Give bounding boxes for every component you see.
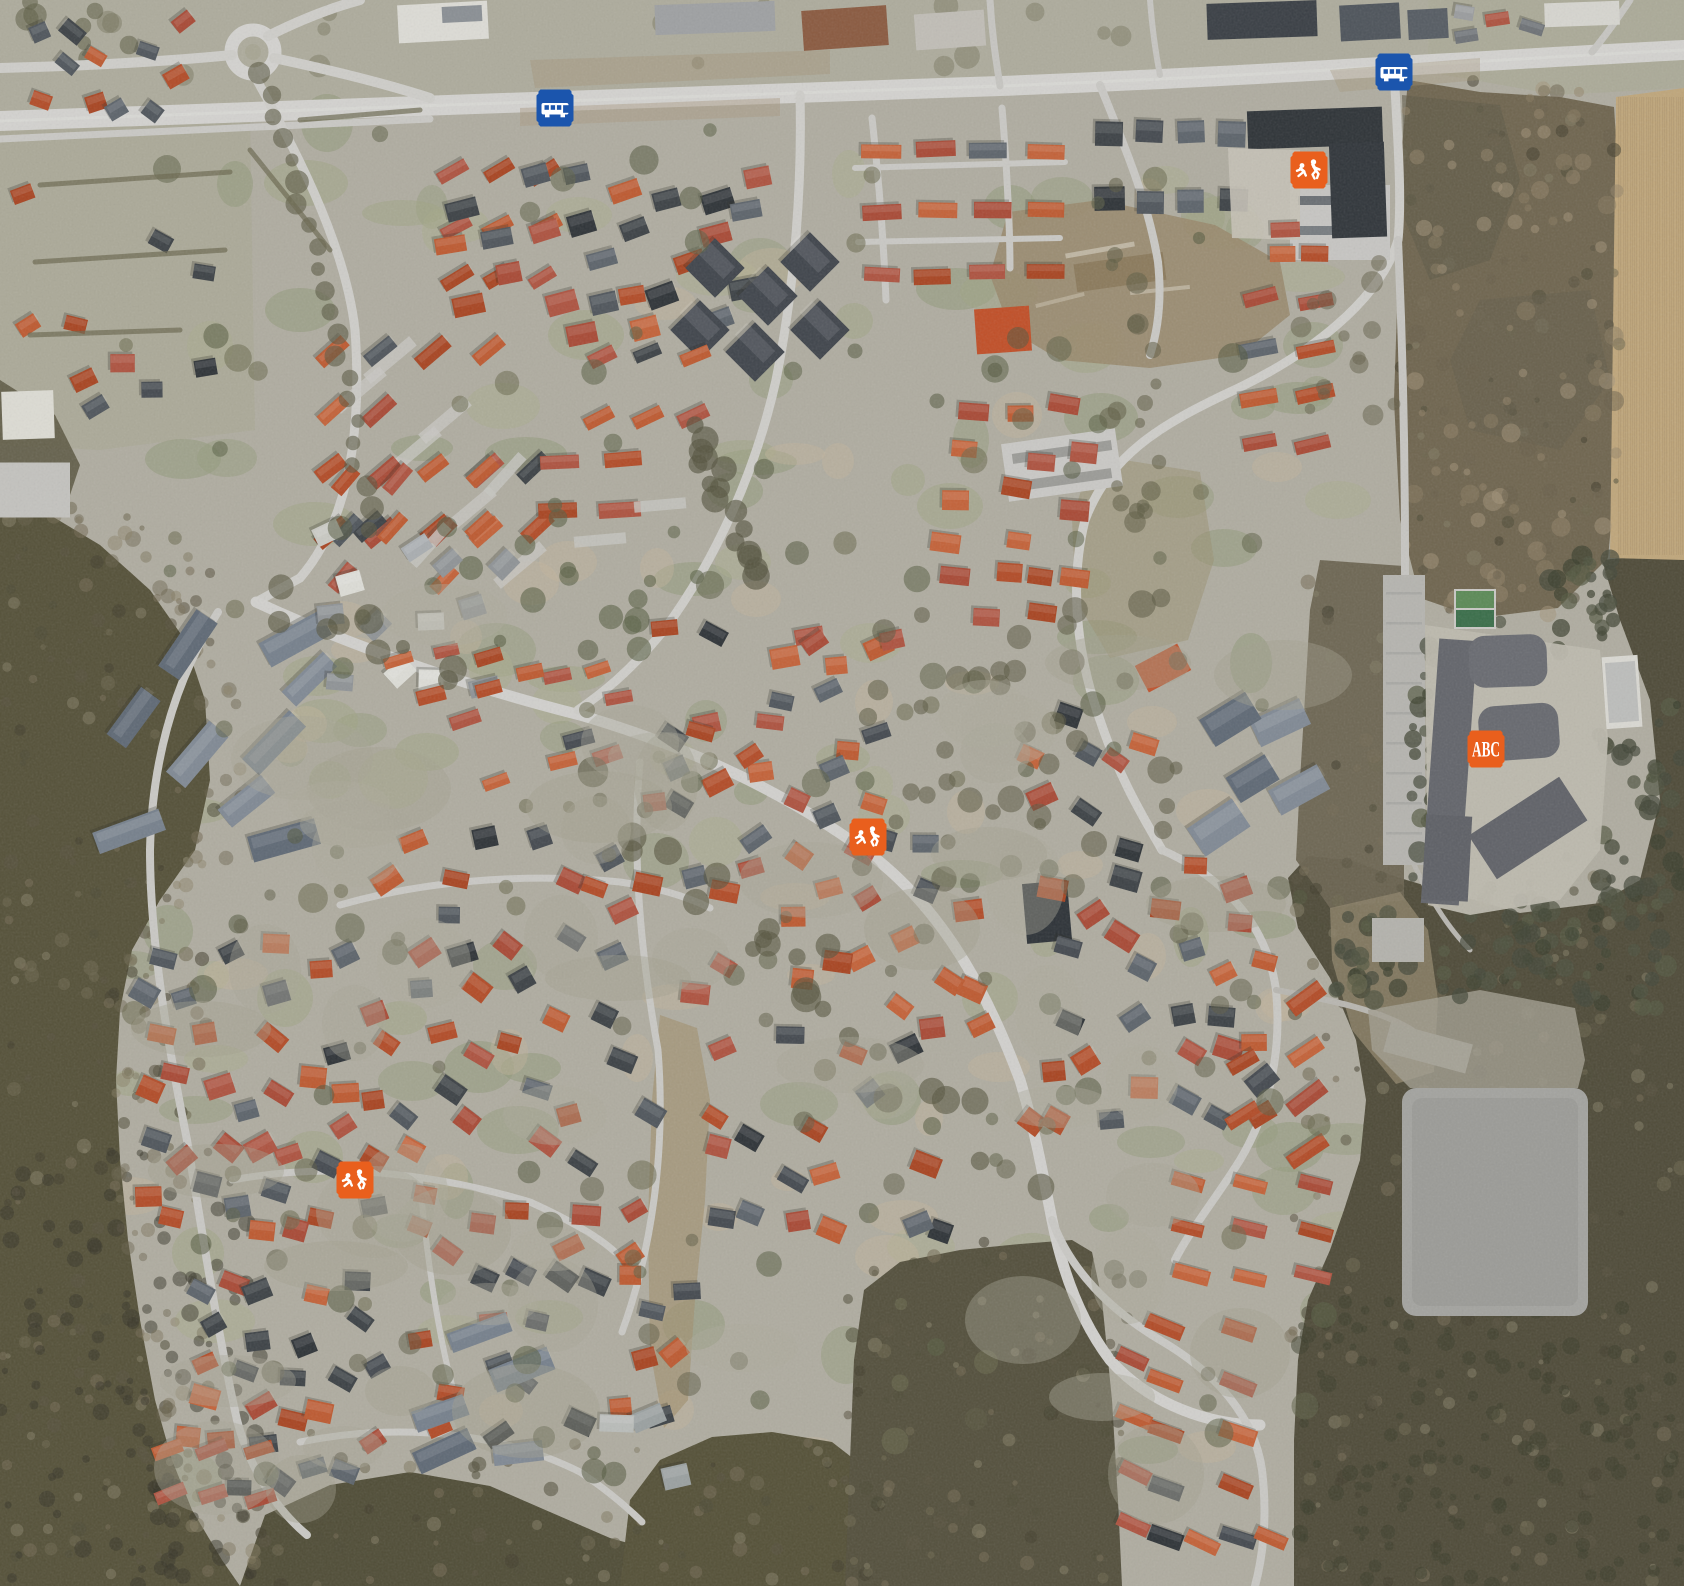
svg-text:ABC: ABC: [1472, 737, 1500, 762]
